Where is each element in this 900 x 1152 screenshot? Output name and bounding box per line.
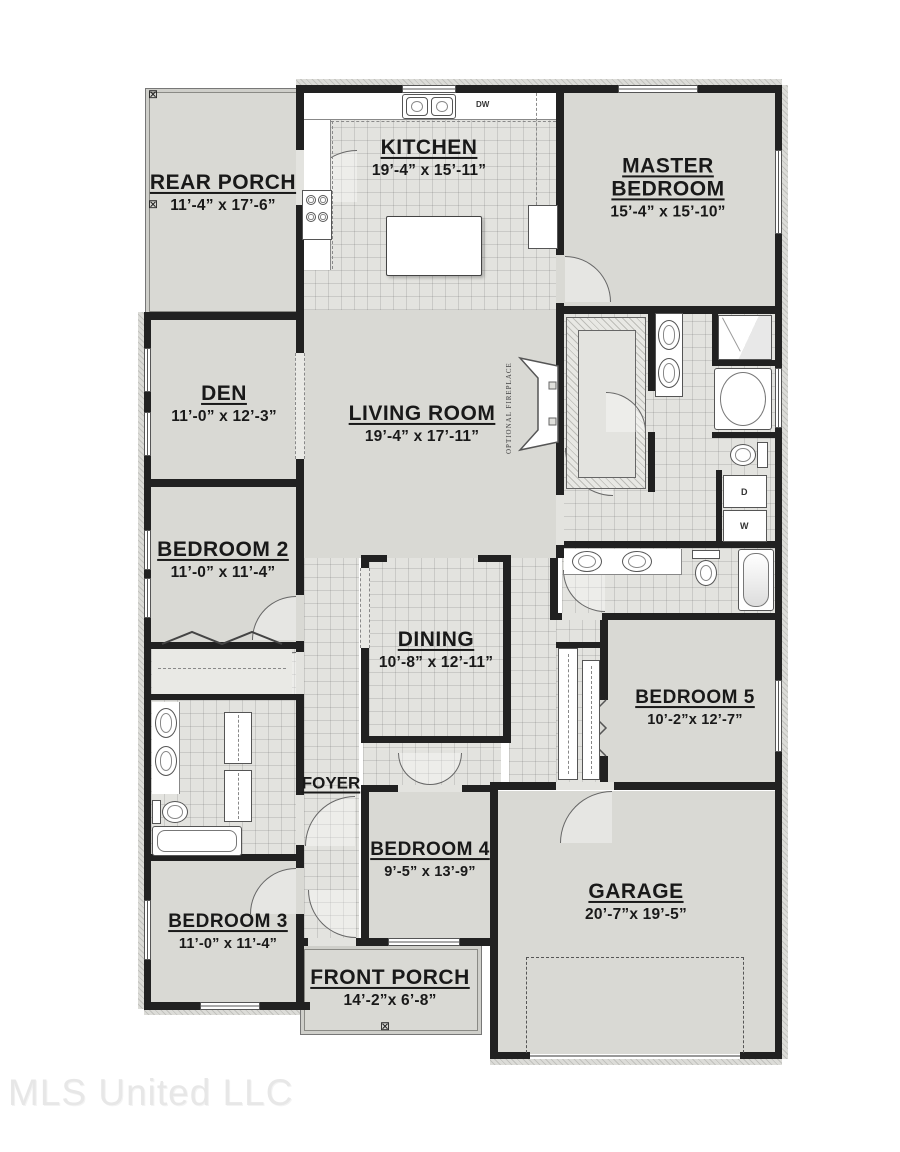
label-bedroom4: BEDROOM 4 9’-5” x 13’-9”: [370, 840, 490, 880]
room-dims: 19’-4” x 17’-11”: [349, 428, 496, 446]
washer-label: W: [740, 521, 749, 531]
room-name: DINING: [398, 628, 475, 651]
stove-burner-3: [306, 212, 316, 222]
room-name: BEDROOM 4: [370, 840, 490, 861]
room-dims: 20’-7”x 19’-5”: [585, 906, 687, 924]
hallbath-toilet-tank: [152, 800, 161, 824]
optional-fireplace-label: OPTIONAL FIREPLACE: [505, 358, 513, 454]
wall-tub-bottom: [712, 432, 776, 438]
opening-front-door: [308, 938, 356, 946]
master-toilet-bowl: [730, 444, 756, 466]
opening-bed2-door: [296, 595, 304, 641]
room-name: BEDROOM 2: [157, 538, 289, 561]
master-shower: [718, 315, 772, 360]
label-garage: GARAGE 20’-7”x 19’-5”: [585, 880, 687, 924]
watermark: MLS United LLC: [8, 1072, 293, 1114]
wall-garage-bottom-left: [490, 1052, 530, 1059]
room-name: BEDROOM 3: [168, 912, 288, 933]
room-dims: 15’-4” x 15’-10”: [593, 204, 743, 222]
stove-burner-1: [306, 195, 316, 205]
wall-garage-bottom-right: [740, 1052, 782, 1059]
wall-kitchen-master-divider: [556, 85, 564, 558]
bifold-door-bed2-closet: [162, 630, 282, 646]
rear-hall-floor: [509, 558, 556, 788]
room-name: FRONT PORCH: [310, 966, 470, 989]
opening-garage-door: [556, 782, 614, 790]
hallbath-linen-1: [224, 712, 252, 764]
opening-master-door: [556, 255, 564, 303]
kitchen-sink-basin-left: [406, 97, 428, 116]
dryer-label: D: [741, 487, 748, 497]
wall-masterbath-closet-right2: [648, 432, 655, 492]
window-bed2-2: [144, 578, 151, 618]
wall-top-exterior: [296, 85, 782, 93]
label-bedroom3: BEDROOM 3 11’-0” x 11’-4”: [168, 912, 288, 952]
column-icon-rear-1: ⊠: [148, 88, 158, 100]
wall-rearhall-right: [550, 558, 558, 620]
bed2-closet: [152, 649, 292, 694]
window-den-2: [144, 412, 151, 456]
room-dims: 10’-8” x 12’-11”: [379, 654, 493, 672]
room-name: REAR PORCH: [150, 171, 296, 194]
window-bed5: [775, 680, 782, 752]
wall-dining-top-left: [361, 555, 387, 562]
garage-door-threshold: [530, 1055, 740, 1057]
label-bedroom5: BEDROOM 5 10’-2”x 12’-7”: [635, 688, 755, 728]
room-name: LIVING ROOM: [349, 402, 496, 425]
opening-hallbath-door: [296, 652, 304, 694]
room-dims: 10’-2”x 12’-7”: [635, 712, 755, 728]
wall-dining-bottom: [361, 736, 511, 743]
master-tub-basin: [720, 372, 766, 426]
label-den: DEN 11’-0” x 12’-3”: [171, 382, 277, 426]
bath2-toilet-bowl: [695, 560, 717, 586]
wall-corridor-left: [296, 488, 304, 1009]
window-master-top: [618, 85, 698, 93]
cabinet-dash-top: [331, 121, 556, 122]
cabinet-dash-left: [332, 121, 333, 269]
wall-masterbath-closet-right: [648, 313, 655, 391]
label-kitchen: KITCHEN 19’-4” x 15’-11”: [372, 136, 486, 180]
opening-bed4-doors: [398, 785, 462, 792]
kitchen-sink-basin-right: [431, 97, 453, 116]
bath2-toilet-tank: [692, 550, 720, 559]
hallbath-linen-2: [224, 770, 252, 822]
window-den-1: [144, 348, 151, 392]
bed5-closet-a: [558, 648, 578, 780]
master-toilet-tank: [757, 442, 768, 468]
wall-shower-bottom: [712, 360, 776, 366]
opening-living-hall: [556, 495, 564, 545]
window-tub: [775, 368, 782, 428]
master-sink-1: [658, 320, 680, 350]
bath2-sink-2: [622, 551, 652, 572]
label-front-porch: FRONT PORCH 14’-2”x 6’-8”: [310, 966, 470, 1010]
label-dining: DINING 10’-8” x 12’-11”: [379, 628, 493, 672]
wall-laundry-left: [716, 470, 722, 544]
hallbath-sink-1: [155, 708, 177, 738]
wall-hallbath-closet-divider: [151, 694, 297, 700]
wall-bath2-top: [556, 541, 782, 548]
wall-den-top: [144, 312, 304, 320]
label-foyer: FOYER: [302, 775, 361, 794]
wall-garage-left: [490, 782, 498, 1059]
label-bedroom2: BEDROOM 2 11’-0” x 11’-4”: [157, 538, 289, 582]
room-dims: 9’-5” x 13’-9”: [370, 864, 490, 880]
room-name: DEN: [201, 382, 247, 405]
opening-foyer-closet: [296, 795, 304, 845]
master-sink-2: [658, 358, 680, 388]
label-rear-porch: REAR PORCH 11’-4” x 17’-6”: [150, 171, 296, 215]
opening-dining-cased: [360, 568, 370, 648]
cabinet-dash-right: [536, 93, 537, 205]
hallbath-toilet-bowl: [162, 801, 188, 823]
room-dims: 19’-4” x 15’-11”: [372, 162, 486, 180]
label-living-room: LIVING ROOM 19’-4” x 17’-11”: [349, 402, 496, 446]
room-dims: 11’-0” x 12’-3”: [171, 408, 277, 426]
bath2-sink-1: [572, 551, 602, 572]
window-bed3-bottom: [200, 1002, 260, 1010]
window-master-right: [775, 150, 782, 234]
room-name: KITCHEN: [381, 136, 478, 159]
opening-den-cased: [295, 353, 305, 459]
wall-bed5-closet-top: [556, 642, 602, 648]
hallbath-tub-basin: [157, 830, 237, 852]
window-bed4-bottom: [388, 938, 460, 946]
wall-den-bottom: [144, 479, 304, 487]
dishwasher-label: DW: [476, 100, 489, 109]
hallbath-sink-2: [155, 746, 177, 776]
room-name: FOYER: [302, 775, 361, 794]
opening-bed3-door: [296, 868, 304, 914]
window-bed3: [144, 900, 151, 960]
bath2-tub-basin: [743, 553, 769, 607]
bed2-closet-shelf: [158, 668, 286, 669]
floor-plan-page: DW D W OPTIONAL FIREPLACE: [0, 0, 900, 1152]
refrigerator: [528, 205, 558, 249]
bed5-closet-b: [582, 660, 600, 780]
room-name: BEDROOM 5: [635, 688, 755, 709]
room-dims: 14’-2”x 6’-8”: [310, 992, 470, 1010]
wall-bed4-left: [361, 785, 369, 945]
room-dims: 11’-0” x 11’-4”: [157, 564, 289, 582]
stove-burner-2: [318, 195, 328, 205]
foyer-corridor-floor: [304, 558, 359, 942]
exterior-hatch-right: [782, 85, 788, 1059]
wall-dining-top-right: [478, 555, 511, 562]
window-bed2-1: [144, 530, 151, 570]
room-name: MASTER BEDROOM: [593, 154, 743, 200]
room-name: GARAGE: [588, 880, 683, 903]
room-dims: 11’-0” x 11’-4”: [168, 936, 288, 952]
opening-bath2-door: [562, 613, 602, 620]
wall-dining-right: [503, 558, 511, 743]
exterior-hatch-bottom-garage: [490, 1059, 782, 1065]
stove-burner-4: [318, 212, 328, 222]
room-dims: 11’-4” x 17’-6”: [150, 197, 296, 215]
window-kitchen: [402, 85, 456, 93]
garage-door-outline: [526, 957, 744, 1053]
kitchen-island: [386, 216, 482, 276]
label-master-bedroom: MASTER BEDROOM 15’-4” x 15’-10”: [593, 154, 743, 221]
column-icon-front: ⊠: [380, 1020, 390, 1032]
fireplace-shape: [518, 356, 560, 452]
